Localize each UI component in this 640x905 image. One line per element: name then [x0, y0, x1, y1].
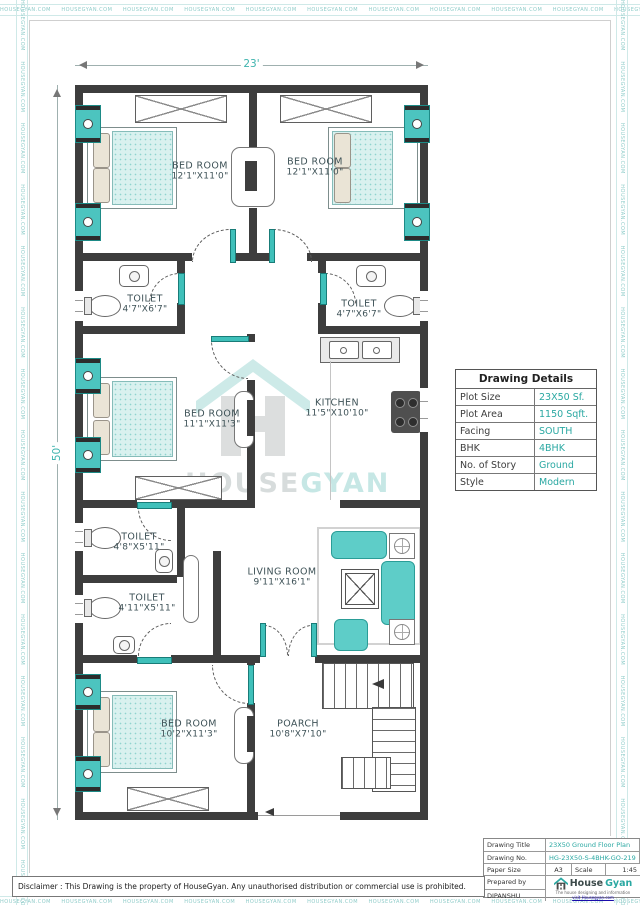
room-label-bedroom-1: BED ROOM 12'1"X11'0": [171, 161, 228, 182]
room-name: BED ROOM: [286, 157, 343, 168]
detail-label: Plot Size: [456, 389, 535, 405]
mattress: [112, 381, 173, 457]
toilet-tank: [84, 529, 92, 547]
detail-label: BHK: [456, 440, 535, 456]
room-name: BED ROOM: [183, 409, 240, 420]
pillow: [93, 168, 110, 203]
wash-basin: [155, 549, 173, 573]
room-label-bedroom-3: BED ROOM 11'1"X11'3": [183, 409, 240, 430]
table-row: Facing SOUTH: [456, 423, 596, 440]
detail-value: SOUTH: [535, 423, 596, 439]
door-swing-arc: [264, 625, 288, 656]
sheet-inner-border-left: [29, 20, 30, 873]
entry-arrow: [261, 808, 274, 816]
door-swing-arc: [138, 623, 171, 656]
dimension-arrow-right: [416, 61, 428, 69]
window: [75, 291, 83, 321]
room-label-toilet-1: TOILET 4'7"X6'7": [123, 294, 168, 315]
detail-value: 23X50 Sf.: [535, 389, 596, 405]
title-block-row: Drawing Title 23X50 Ground Floor Plan: [484, 839, 640, 852]
title-block-row: Drawing No. HG-23X50-S-4BHK-GO-219: [484, 852, 640, 864]
wall: [83, 500, 137, 508]
title-block-row: Paper Size A3 Scale 1:45: [484, 864, 640, 876]
door-panel: [211, 336, 249, 342]
door-swing-arc: [192, 229, 231, 262]
stove-burner: [395, 417, 405, 427]
drawing-number-value: HG-23X50-S-4BHK-GO-219: [546, 852, 640, 863]
room-size: 4'8"X5'11": [113, 543, 164, 553]
wardrobe: [135, 476, 222, 500]
room-name: TOILET: [113, 532, 164, 543]
sink-tub: [329, 341, 359, 359]
wardrobe: [135, 95, 227, 123]
toilet-seat: [384, 295, 416, 317]
wall: [249, 93, 257, 148]
wall: [83, 575, 177, 583]
sheet-inner-border-top: [29, 20, 611, 21]
dimension-arrow-top: [53, 85, 61, 97]
door-panel: [248, 665, 254, 705]
table-row: BHK 4BHK: [456, 440, 596, 457]
window: [75, 437, 101, 473]
window: [75, 105, 101, 143]
title-block-label: Drawing Title: [484, 839, 546, 851]
sofa-three-seater: [381, 561, 415, 625]
door-panel: [137, 657, 172, 664]
room-label-toilet-3: TOILET 4'8"X5'11": [113, 532, 164, 553]
side-table: [389, 619, 415, 645]
height-dimension-label: 50': [51, 441, 63, 463]
wall: [247, 655, 255, 665]
sofa-two-seater: [331, 531, 387, 559]
toilet-seat: [89, 597, 121, 619]
dimension-arrow-bottom: [53, 808, 61, 820]
wall: [177, 261, 185, 273]
door-swing-arc: [273, 229, 312, 262]
prepared-by-value: DIPANSHU: [484, 890, 545, 901]
window: [75, 674, 101, 710]
wall: [340, 500, 420, 508]
detail-value: 4BHK: [535, 440, 596, 456]
stove-burner: [408, 398, 418, 408]
wall: [234, 253, 269, 261]
wall: [83, 253, 192, 261]
room-label-toilet-2: TOILET 4'7"X6'7": [337, 299, 382, 320]
wash-basin: [356, 265, 386, 287]
side-table: [389, 533, 415, 559]
detail-label: Style: [456, 474, 535, 490]
toilet-tank: [84, 297, 92, 315]
wall: [307, 253, 420, 261]
wall: [318, 261, 326, 273]
sheet-border-text-left: HOUSEGYAN.COM HOUSEGYAN.COM HOUSEGYAN.CO…: [16, 0, 28, 905]
width-dimension-label: 23': [240, 58, 262, 70]
top-dimension: 23': [75, 58, 428, 72]
housegyan-logo: HouseGyan The house designing and inform…: [546, 876, 640, 901]
wall: [249, 208, 257, 253]
room-name: BED ROOM: [171, 161, 228, 172]
room-size: 11'1"X11'3": [183, 420, 240, 430]
detail-label: No. of Story: [456, 457, 535, 473]
door-panel: [137, 502, 172, 509]
window: [75, 595, 83, 623]
title-block-row: Prepared by DIPANSHU HouseGyan The house…: [484, 876, 640, 900]
room-name: KITCHEN: [305, 398, 368, 409]
room-name: TOILET: [123, 294, 168, 305]
disclaimer-bar: Disclaimer : This Drawing is the propert…: [12, 876, 485, 897]
window: [75, 203, 101, 241]
scale-label: Scale: [572, 864, 606, 875]
brand-lockup: HouseGyan: [554, 877, 633, 890]
stair-direction-arrow: [367, 679, 384, 689]
drawing-details-table: Drawing Details Plot Size 23X50 Sf. Plot…: [455, 369, 597, 491]
window: [420, 388, 428, 432]
table-row: Style Modern: [456, 474, 596, 490]
title-block-label: Paper Size: [484, 864, 546, 875]
toilet-seat: [89, 295, 121, 317]
sliding-door-leaf: [245, 161, 257, 191]
title-block: Drawing Title 23X50 Ground Floor Plan Dr…: [483, 838, 640, 898]
door-swing-arc: [212, 665, 249, 704]
detail-value: Modern: [535, 474, 596, 490]
sheet-inner-border-right: [610, 20, 611, 836]
room-label-kitchen: KITCHEN 11'5"X10'10": [305, 398, 368, 419]
wardrobe: [127, 787, 209, 811]
brand-name-gyan: Gyan: [605, 878, 632, 889]
stove: [391, 391, 421, 433]
window: [404, 203, 430, 241]
door-panel: [311, 623, 317, 657]
door-swing-arc: [288, 625, 312, 656]
drawing-title-value: 23X50 Ground Floor Plan: [546, 839, 640, 851]
room-label-porch: POARCH 10'8"X7'10": [269, 719, 326, 740]
table-row: Plot Area 1150 Sqft.: [456, 406, 596, 423]
sheet-border-text-top: HOUSEGYAN.COM HOUSEGYAN.COM HOUSEGYAN.CO…: [0, 4, 640, 16]
room-size: 4'11"X5'11": [118, 604, 175, 614]
mattress: [112, 131, 173, 205]
sink-tub: [362, 341, 392, 359]
kitchen-counter-line: [330, 361, 331, 500]
room-label-toilet-4: TOILET 4'11"X5'11": [118, 593, 175, 614]
wall: [83, 326, 177, 334]
room-size: 9'11"X16'1": [247, 578, 316, 588]
detail-value: Ground: [535, 457, 596, 473]
room-size: 11'5"X10'10": [305, 409, 368, 419]
wall: [420, 85, 428, 820]
door-panel: [260, 623, 266, 657]
center-table-top: [345, 573, 375, 605]
center-table: [341, 569, 379, 609]
disclaimer-text: Disclaimer : This Drawing is the propert…: [18, 882, 466, 891]
floor-plan: BED ROOM 12'1"X11'0" BED ROOM 12'1"X11'0…: [75, 85, 428, 820]
title-block-label: Drawing No.: [484, 852, 546, 863]
wall: [83, 655, 137, 663]
detail-value: 1150 Sqft.: [535, 406, 596, 422]
room-label-bedroom-4: BED ROOM 10'2"X11'3": [160, 719, 217, 740]
room-size: 12'1"X11'0": [286, 168, 343, 178]
floor-plan-sheet: HOUSEGYAN.COM HOUSEGYAN.COM HOUSEGYAN.CO…: [0, 0, 640, 905]
room-size: 10'8"X7'10": [269, 730, 326, 740]
stove-burner: [395, 398, 405, 408]
wall: [170, 500, 247, 508]
sliding-door-leaf: [247, 716, 255, 752]
stove-burner: [408, 417, 418, 427]
prepared-by-label: Prepared by: [484, 876, 545, 890]
wash-basin: [113, 636, 135, 654]
kitchen-sink: [320, 337, 400, 363]
room-label-bedroom-2: BED ROOM 12'1"X11'0": [286, 157, 343, 178]
shower-door-symbol: [183, 555, 199, 623]
brand-name-house: House: [570, 878, 603, 889]
door-panel: [320, 273, 327, 305]
toilet-tank: [84, 599, 92, 617]
room-label-living-room: LIVING ROOM 9'11"X16'1": [247, 567, 316, 588]
room-size: 4'7"X6'7": [337, 310, 382, 320]
door-panel: [178, 273, 185, 305]
detail-label: Plot Area: [456, 406, 535, 422]
wall: [177, 303, 185, 334]
wall: [75, 812, 428, 820]
table-row: Plot Size 23X50 Sf.: [456, 389, 596, 406]
brand-link[interactable]: visit Housegyan.com: [572, 895, 614, 900]
window: [420, 291, 428, 321]
wardrobe: [280, 95, 372, 123]
wall: [213, 551, 221, 655]
window: [75, 523, 83, 551]
door-panel: [269, 229, 275, 263]
wall: [315, 655, 420, 663]
door-swing-arc: [211, 340, 248, 379]
paper-size-value: A3: [546, 864, 572, 875]
scale-value: 1:45: [606, 864, 640, 875]
door-panel: [230, 229, 236, 263]
detail-label: Facing: [456, 423, 535, 439]
sheet-border-text-right: HOUSEGYAN.COM HOUSEGYAN.COM HOUSEGYAN.CO…: [616, 0, 628, 905]
table-row: No. of Story Ground: [456, 457, 596, 474]
room-name: TOILET: [337, 299, 382, 310]
house-icon: [554, 877, 568, 890]
dimension-arrow-left: [75, 61, 87, 69]
sliding-door-leaf: [247, 400, 255, 436]
window: [404, 105, 430, 143]
left-dimension: 50': [50, 85, 64, 820]
room-size: 4'7"X6'7": [123, 305, 168, 315]
wash-basin: [119, 265, 149, 287]
prepared-by-cell: Prepared by DIPANSHU: [484, 876, 546, 901]
wall: [75, 85, 428, 93]
wall: [318, 326, 420, 334]
room-size: 12'1"X11'0": [171, 172, 228, 182]
room-name: TOILET: [118, 593, 175, 604]
room-name: BED ROOM: [160, 719, 217, 730]
room-size: 10'2"X11'3": [160, 730, 217, 740]
details-table-title: Drawing Details: [456, 370, 596, 389]
armchair: [334, 619, 368, 651]
stair-flight-bottom: [341, 757, 391, 789]
room-name: LIVING ROOM: [247, 567, 316, 578]
window: [75, 756, 101, 792]
window: [75, 358, 101, 394]
room-name: POARCH: [269, 719, 326, 730]
